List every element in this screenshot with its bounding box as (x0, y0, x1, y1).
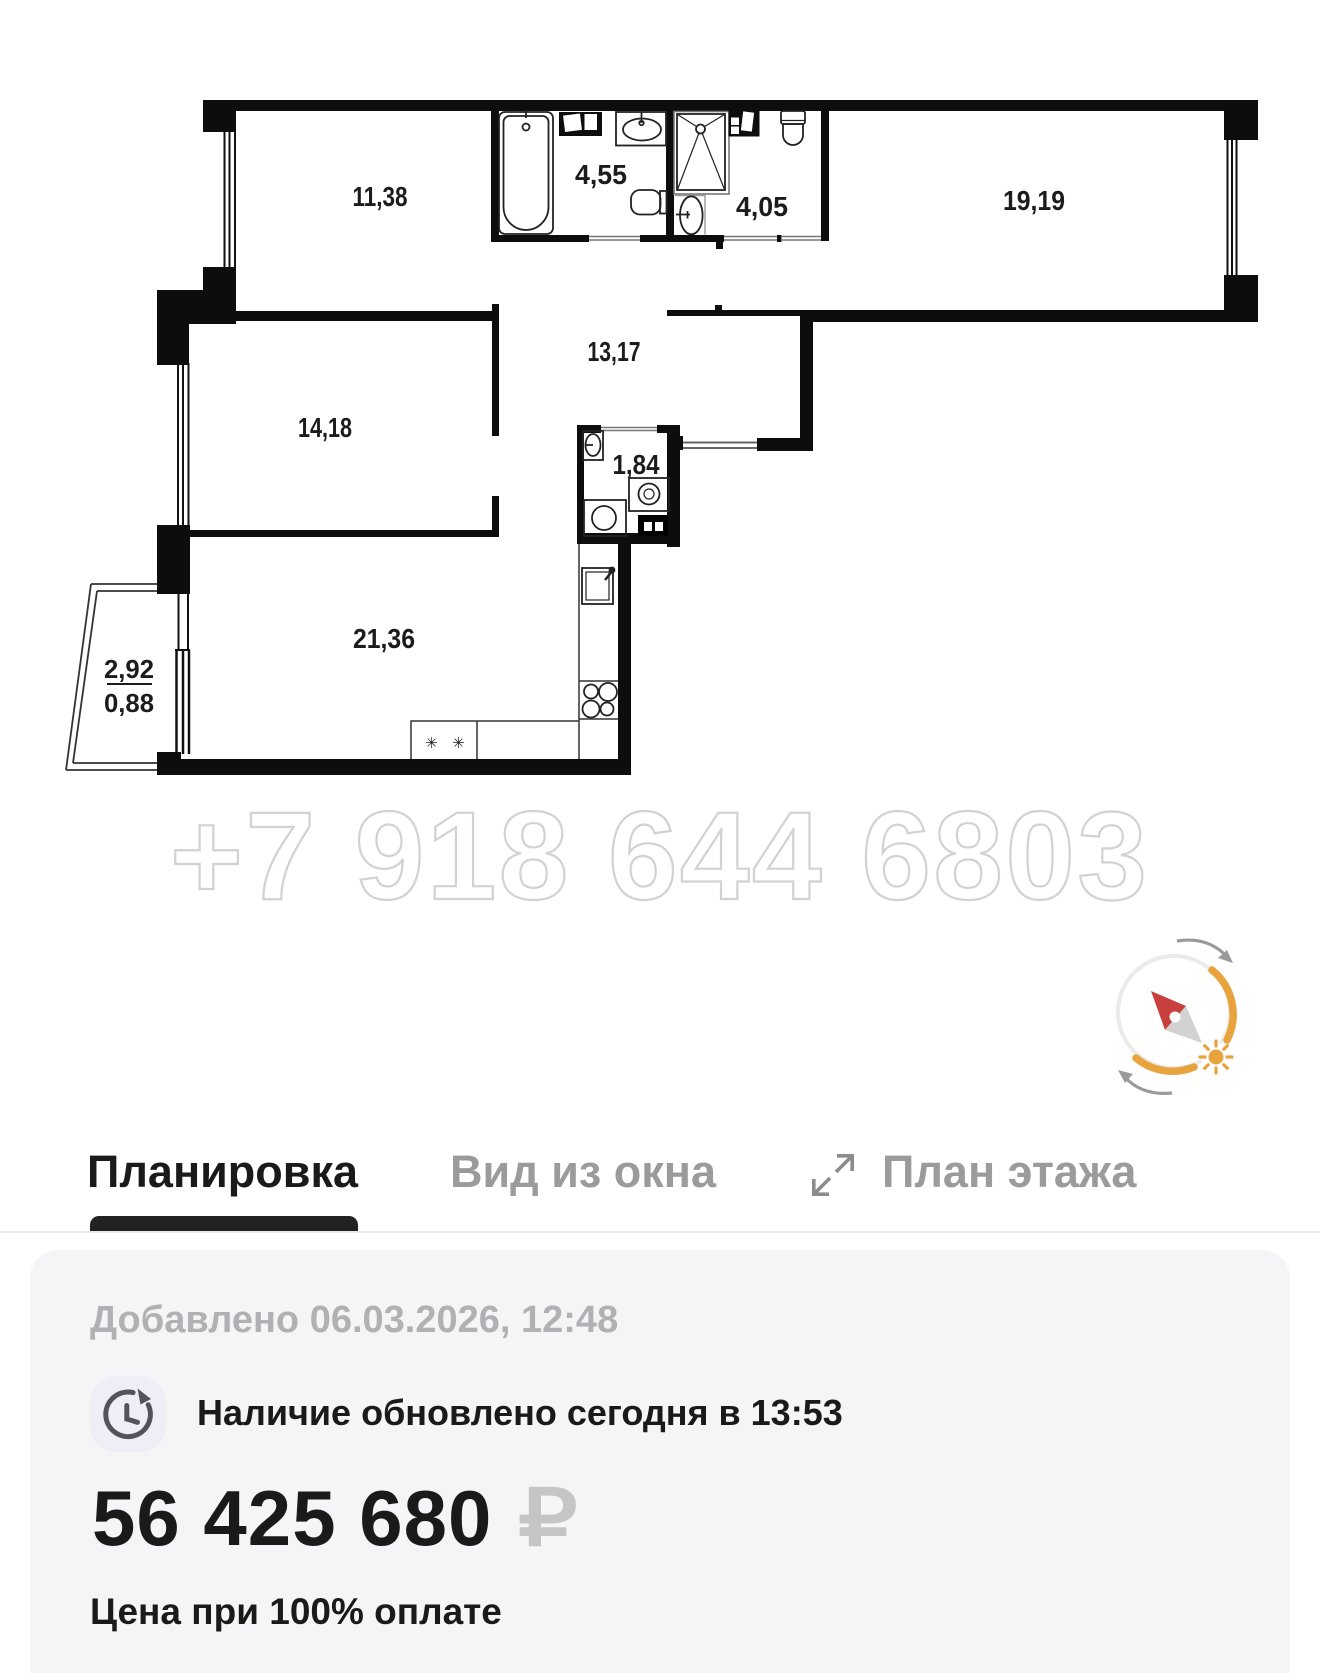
svg-text:0,88: 0,88 (104, 688, 154, 718)
svg-text:✳: ✳ (452, 735, 465, 752)
svg-text:13,17: 13,17 (588, 336, 641, 367)
svg-text:1,84: 1,84 (613, 449, 660, 480)
svg-text:21,36: 21,36 (353, 623, 415, 654)
svg-text:11,38: 11,38 (353, 181, 408, 212)
svg-text:2,92: 2,92 (104, 654, 154, 684)
svg-text:19,19: 19,19 (1003, 185, 1065, 216)
svg-text:14,18: 14,18 (298, 412, 352, 443)
svg-text:4,55: 4,55 (575, 159, 627, 190)
svg-text:4,05: 4,05 (736, 191, 788, 222)
svg-text:✳: ✳ (425, 735, 438, 752)
